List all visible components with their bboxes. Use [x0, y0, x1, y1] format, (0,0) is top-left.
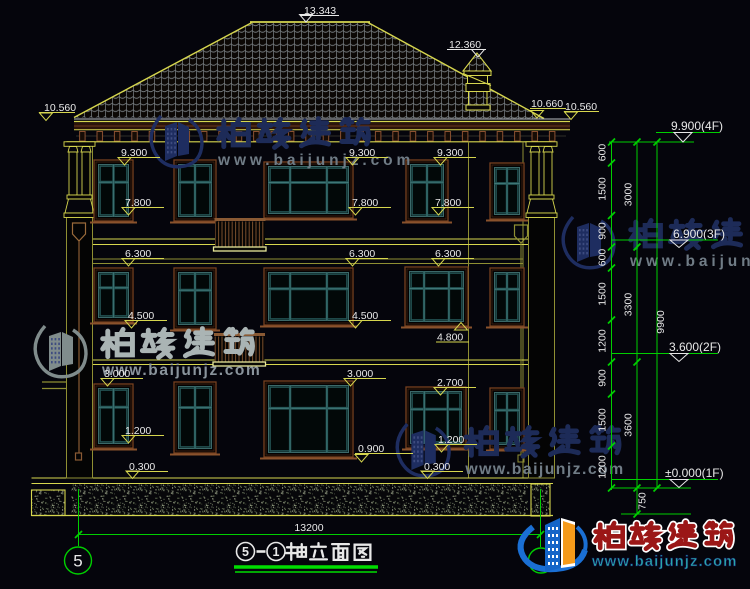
svg-text:600: 600 [597, 144, 609, 162]
svg-text:9.900(4F): 9.900(4F) [671, 119, 723, 133]
svg-text:3000: 3000 [623, 183, 635, 207]
svg-text:1200: 1200 [597, 455, 609, 479]
svg-text:6.900(3F): 6.900(3F) [673, 227, 725, 241]
svg-text:750: 750 [637, 492, 649, 510]
svg-text:3600: 3600 [623, 413, 635, 437]
svg-text:900: 900 [597, 369, 609, 387]
svg-text:www.baijunjz.com: www.baijunjz.com [629, 253, 750, 270]
svg-text:5: 5 [73, 552, 82, 571]
svg-text:1500: 1500 [597, 282, 609, 306]
svg-text:600: 600 [597, 249, 609, 267]
svg-text:3.600(2F): 3.600(2F) [669, 340, 721, 354]
svg-text:www.baijunjz.com: www.baijunjz.com [217, 152, 414, 169]
svg-text:3300: 3300 [623, 293, 635, 317]
svg-text:www.baijunjz.com: www.baijunjz.com [591, 553, 737, 570]
svg-text:1500: 1500 [597, 177, 609, 201]
svg-text:1: 1 [273, 545, 280, 559]
svg-text:9900: 9900 [655, 310, 667, 334]
svg-text:900: 900 [597, 222, 609, 240]
svg-text:1200: 1200 [597, 329, 609, 353]
svg-text:5: 5 [242, 545, 249, 559]
svg-text:±0.000(1F): ±0.000(1F) [665, 466, 724, 480]
svg-text:13200: 13200 [294, 522, 323, 534]
svg-text:1500: 1500 [597, 408, 609, 432]
